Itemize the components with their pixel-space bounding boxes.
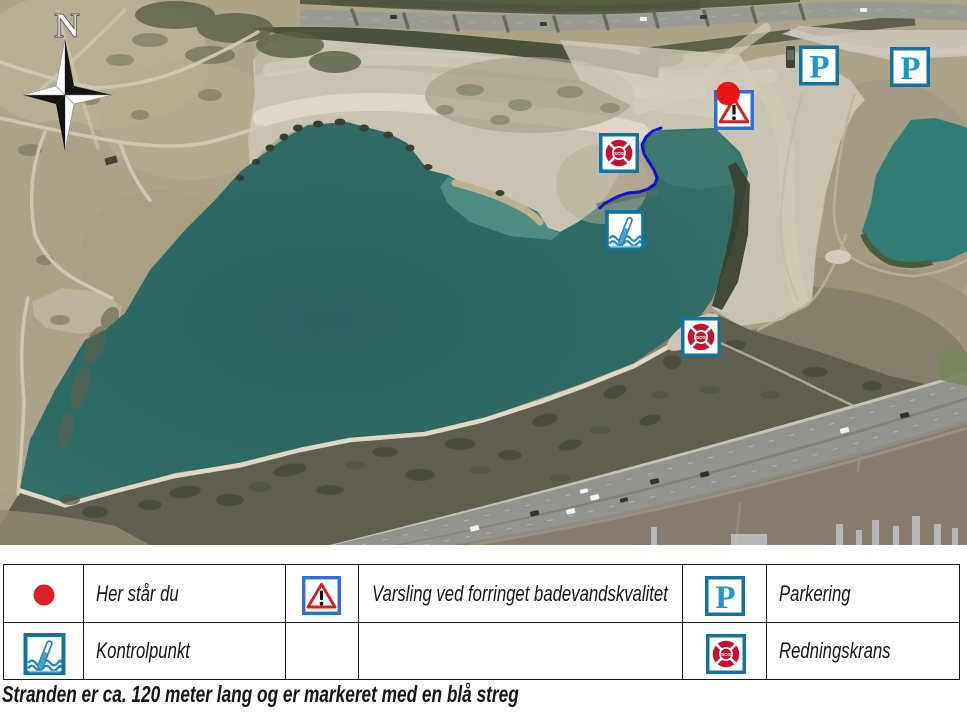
svg-text:N: N <box>54 6 79 45</box>
